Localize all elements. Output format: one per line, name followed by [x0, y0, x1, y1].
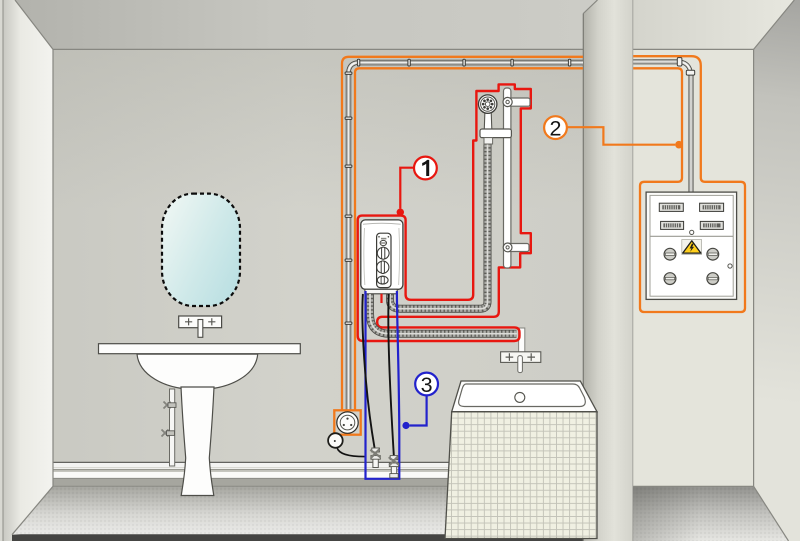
svg-text:3: 3	[421, 373, 433, 397]
svg-text:2: 2	[550, 116, 562, 140]
